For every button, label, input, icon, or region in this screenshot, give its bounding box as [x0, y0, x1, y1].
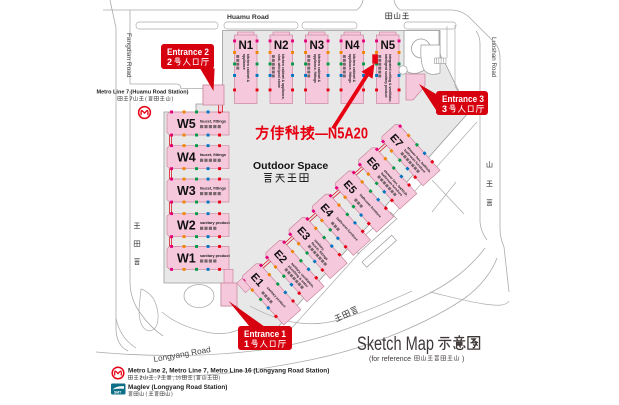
svg-text:Metro Line 2, Metro Line 7, Me: Metro Line 2, Metro Line 7, Metro Line 1… — [128, 368, 329, 375]
svg-text:Huamu Road: Huamu Road — [227, 14, 269, 21]
svg-text:): ) — [219, 375, 221, 381]
svg-text:, 16: , 16 — [173, 375, 182, 381]
svg-text:(for reference: (for reference — [369, 356, 411, 363]
svg-text:—N5A20: —N5A20 — [315, 126, 368, 143]
svg-text:W4: W4 — [177, 151, 196, 165]
svg-text:sanitary product: sanitary product — [200, 254, 230, 258]
svg-text:N5: N5 — [380, 40, 395, 52]
svg-text:7: 7 — [158, 375, 161, 381]
svg-text:appliance, fittings: appliance, fittings — [313, 54, 317, 83]
svg-text:Entrance 3: Entrance 3 — [442, 94, 484, 104]
svg-text:Entrance 2: Entrance 2 — [167, 47, 209, 57]
svg-text:SMT: SMT — [114, 391, 122, 395]
svg-text:faucet, fittings: faucet, fittings — [200, 153, 226, 157]
svg-text:N3: N3 — [309, 40, 324, 52]
svg-text:N2: N2 — [274, 40, 289, 52]
svg-text:2: 2 — [140, 375, 143, 381]
svg-text:appliance: appliance — [242, 54, 246, 70]
svg-text:(: ( — [194, 375, 196, 381]
svg-text:faucet, fittings: faucet, fittings — [200, 187, 226, 191]
svg-text:Sketch Map: Sketch Map — [357, 334, 434, 355]
svg-text:sanitary product: sanitary product — [200, 221, 230, 225]
svg-text:N1: N1 — [238, 40, 253, 52]
svg-text:N4: N4 — [345, 40, 360, 52]
svg-text:Entrance 1: Entrance 1 — [244, 329, 286, 339]
svg-text:,: , — [155, 375, 156, 381]
svg-text:W5: W5 — [177, 117, 196, 131]
svg-text:W2: W2 — [177, 219, 196, 233]
svg-text:2: 2 — [167, 57, 172, 67]
svg-text:(: ( — [146, 392, 148, 398]
svg-text:(: ( — [145, 97, 147, 103]
svg-text:Fangdian Road: Fangdian Road — [125, 33, 132, 78]
svg-text:Metro Line 7 (Huamu Road Stati: Metro Line 7 (Huamu Road Station) — [97, 90, 189, 96]
svg-text:7: 7 — [130, 97, 133, 103]
svg-text:W1: W1 — [177, 251, 196, 265]
svg-text:intelligent sanitary product: intelligent sanitary product — [384, 54, 388, 98]
svg-text:Luoshan Road: Luoshan Road — [490, 37, 497, 78]
svg-text:faucet, fittings: faucet, fittings — [200, 120, 226, 124]
svg-text:Outdoor Space: Outdoor Space — [253, 160, 328, 172]
svg-text:sink, whirlpool stone: sink, whirlpool stone — [277, 54, 281, 88]
svg-text:): ) — [462, 356, 464, 363]
svg-text:W3: W3 — [177, 184, 196, 198]
svg-text:): ) — [172, 97, 174, 103]
svg-text:): ) — [171, 392, 173, 398]
svg-text:1: 1 — [244, 339, 249, 349]
svg-text:appliance, fittings: appliance, fittings — [348, 54, 352, 83]
svg-text:Maglev (Longyang Road Station): Maglev (Longyang Road Station) — [128, 384, 227, 391]
svg-text:3: 3 — [442, 104, 447, 114]
